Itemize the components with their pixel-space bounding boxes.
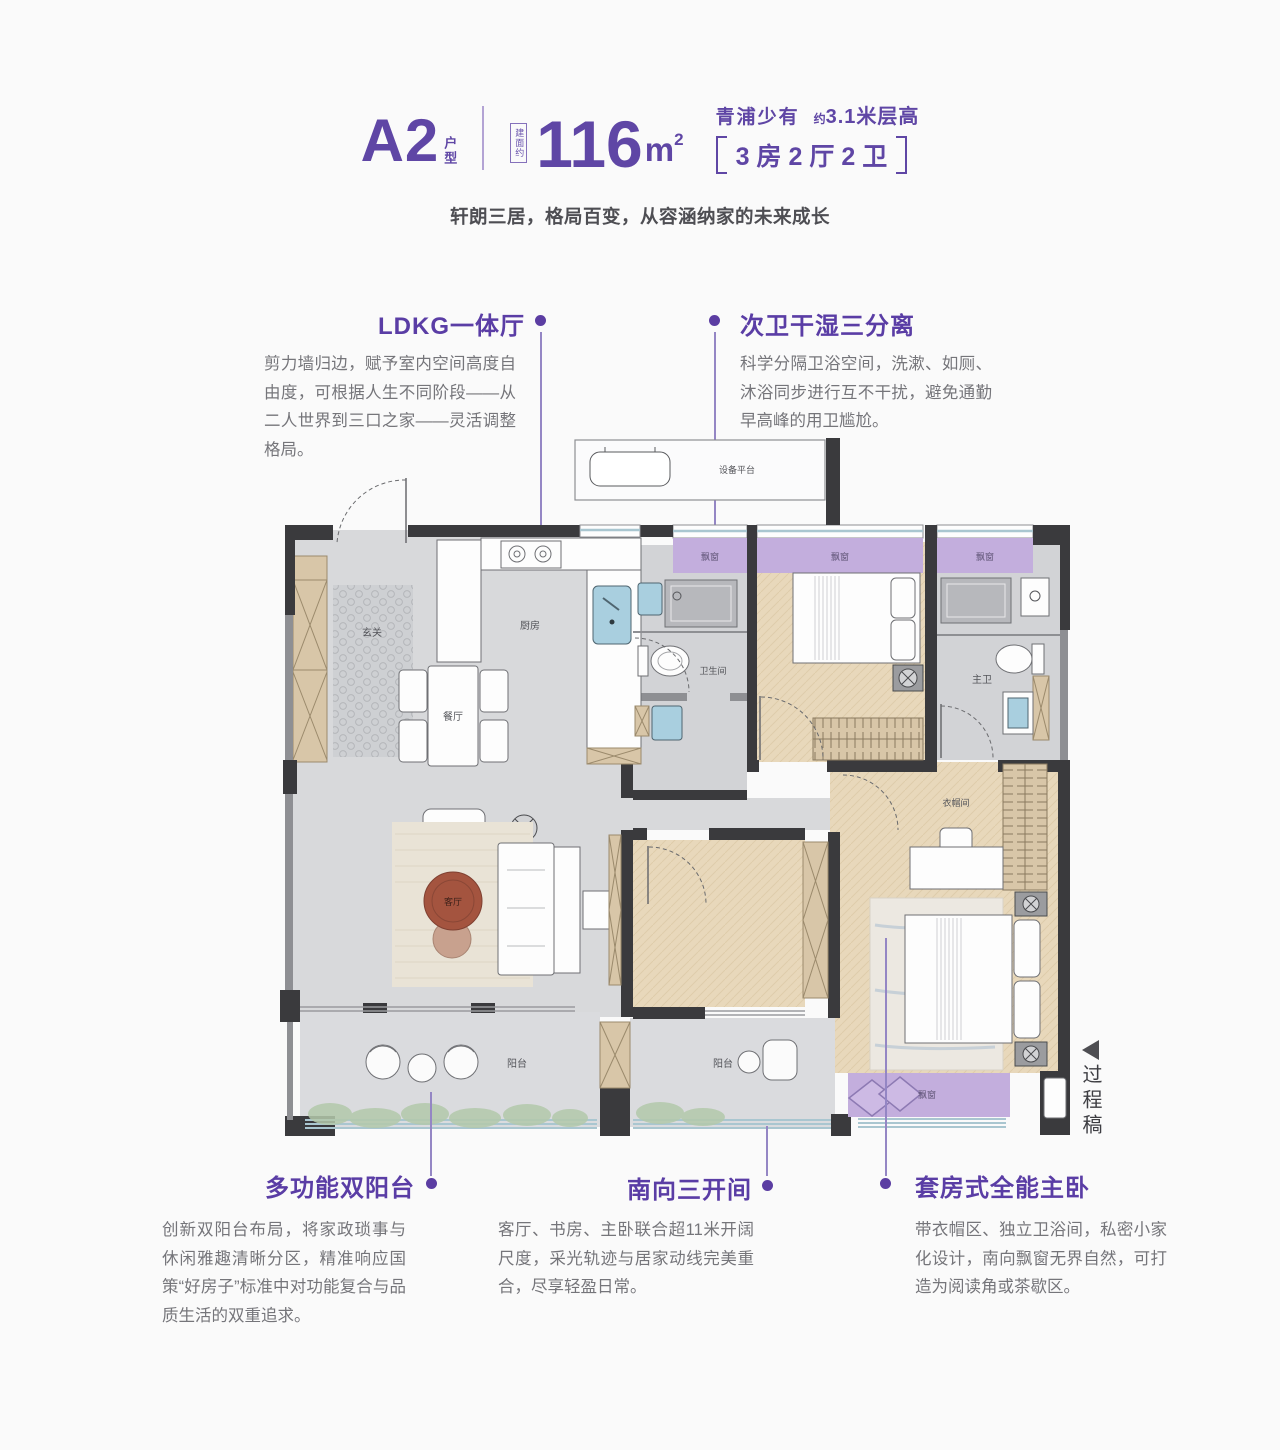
header-right: 青浦少有 约3.1米层高 3房2厅2卫 xyxy=(716,100,920,174)
room-label-balcony-left: 阳台 xyxy=(507,1057,527,1070)
tagline: 轩朗三居，格局百变，从容涵纳家的未来成长 xyxy=(0,203,1280,229)
callout-south-body: 客厅、书房、主卧联合超11米开阔尺度，采光轨迹与居家动线完美重合，尽享轻盈日常。 xyxy=(498,1216,754,1302)
callout-balcony-dot xyxy=(426,1178,437,1189)
bay2-label: 飘窗 xyxy=(831,551,849,562)
bay-south-label: 飘窗 xyxy=(918,1089,936,1100)
room-label-master-bath: 主卫 xyxy=(972,674,992,686)
bracket-left xyxy=(716,136,727,174)
height-text: 约3.1米层高 xyxy=(814,100,920,129)
arrow-left-icon xyxy=(1082,1040,1099,1060)
equipment-platform: 设备平台 xyxy=(575,438,840,525)
room-label-entry: 玄关 xyxy=(362,626,382,639)
callout-south-dot xyxy=(762,1180,773,1191)
floor-plan: 飘窗 飘窗 飘窗 设备平台 xyxy=(275,430,1105,1140)
bay-window-south: 飘窗 xyxy=(848,1073,1066,1118)
process-note: 过程稿 xyxy=(1076,1064,1105,1139)
callout-bath-dot xyxy=(709,315,720,326)
callout-south-title: 南向三开间 xyxy=(467,1170,752,1205)
equipment-label: 设备平台 xyxy=(719,464,755,475)
balcony-divider-column xyxy=(600,1022,630,1088)
poster-page: A2 户型 建面约 116 m2 青浦少有 约3.1米层高 3房2厅2卫 轩朗三… xyxy=(0,0,1280,1450)
bay-windows-top: 飘窗 飘窗 飘窗 xyxy=(673,525,1033,573)
header: A2 户型 建面约 116 m2 青浦少有 约3.1米层高 3房2厅2卫 xyxy=(0,100,1280,176)
plan-code: A2 xyxy=(361,114,440,168)
bay3-label: 飘窗 xyxy=(976,551,994,562)
room-label-dining: 餐厅 xyxy=(443,710,463,723)
area-number: 116 xyxy=(536,117,642,171)
callout-balcony-body: 创新双阳台布局，将家政琐事与休闲雅趣清晰分区，精准响应国策“好房子”标准中对功能… xyxy=(162,1216,406,1330)
closet-wardrobe xyxy=(1003,764,1047,890)
layout-spec: 3房2厅2卫 xyxy=(716,136,920,174)
bay1-label: 飘窗 xyxy=(701,551,719,562)
kitchen-sink xyxy=(593,586,631,644)
kitchen-lower-cabinet xyxy=(587,748,641,764)
callout-bath-body: 科学分隔卫浴空间，洗漱、如厕、沐浴同步进行互不干扰，避免通勤早高峰的用卫尴尬。 xyxy=(740,350,992,436)
callout-south-line xyxy=(766,1126,768,1176)
callout-master-body: 带衣帽区、独立卫浴间，私密小家化设计，南向飘窗无界自然，可打造为阅读角或茶歇区。 xyxy=(915,1216,1167,1302)
room-label-closet: 衣帽间 xyxy=(942,797,969,808)
layout-text: 3房2厅2卫 xyxy=(727,137,897,173)
scarcity-text: 青浦少有 xyxy=(716,102,800,129)
callout-master-dot xyxy=(880,1178,891,1189)
area-unit: m2 xyxy=(645,131,684,169)
room-label-bathroom: 卫生间 xyxy=(699,665,726,676)
callout-balcony-line xyxy=(430,1092,432,1176)
room-label-living: 客厅 xyxy=(444,896,462,907)
callout-balcony-title: 多功能双阳台 xyxy=(130,1168,415,1203)
study-wardrobe xyxy=(803,842,828,998)
area-label-box: 建面约 xyxy=(510,123,527,163)
room-label-kitchen: 厨房 xyxy=(520,619,540,632)
callout-master-title: 套房式全能主卧 xyxy=(915,1168,1090,1203)
header-highlights: 青浦少有 约3.1米层高 xyxy=(716,100,920,129)
bracket-right xyxy=(896,136,907,174)
callout-master-line xyxy=(885,938,887,1176)
plan-code-suffix: 户型 xyxy=(443,136,456,166)
room-label-balcony-mid: 阳台 xyxy=(713,1057,733,1070)
callout-ldk-title: LDKG一体厅 xyxy=(240,306,525,341)
area-superscript: 2 xyxy=(674,130,683,149)
callout-ldk-dot xyxy=(535,315,546,326)
callout-bath-title: 次卫干湿三分离 xyxy=(740,306,915,341)
header-divider xyxy=(482,106,484,170)
